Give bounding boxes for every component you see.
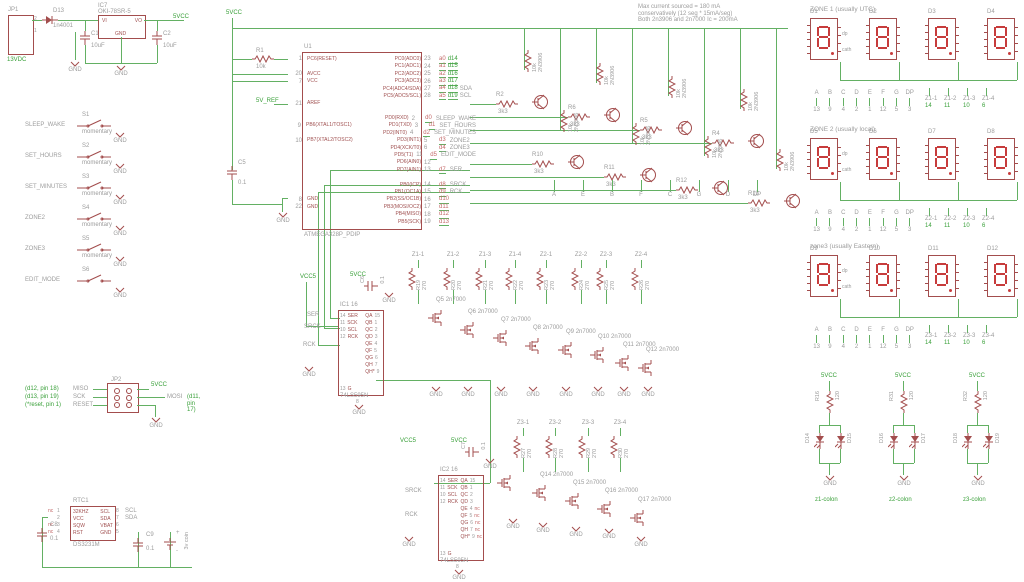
switch-row: SET_MINUTES S3 momentary GND: [25, 174, 155, 205]
pin-name: SCL: [348, 328, 358, 334]
capacitor-icon: [364, 281, 378, 291]
wire: [843, 98, 844, 106]
wire: [840, 299, 841, 317]
colon-led-section: 5VCC R16 120 D14 D15 GND z1-colon 5VCC: [813, 373, 1023, 513]
transistor-value: 2N3906: [718, 136, 724, 158]
pin-name: PB0(ICP): [365, 183, 424, 189]
segment-letter: C: [841, 210, 845, 217]
resistor-v-icon: [578, 436, 586, 458]
pin-name: QH*: [365, 370, 374, 376]
wire: [819, 425, 840, 426]
display-body: [869, 138, 897, 180]
net-label-5vcc: 5VCC: [821, 373, 837, 380]
signal-name: SDA: [460, 86, 472, 93]
net-label: Z3-1: [925, 333, 937, 340]
nmos-icon: [565, 493, 581, 509]
wire: [274, 104, 288, 105]
wire: [843, 335, 844, 343]
isp-header-body: [107, 383, 139, 413]
pin-name: SER: [348, 314, 358, 320]
net-label: Z1-2: [447, 252, 459, 259]
display-body: [928, 138, 956, 180]
colon-group: 5VCC R32 120 D18 D19 GND z3-colon: [963, 373, 1003, 509]
wire: [523, 458, 524, 472]
gnd-symbol: GND: [558, 386, 574, 399]
digit-resistor: Z2-1 R23270: [534, 252, 558, 304]
net-label-ser: SER: [307, 312, 319, 319]
pin-name: 32KHZ: [73, 510, 89, 516]
ic-right-pins: QA15QB1QC2QD3QE4QF5QG6QH7QH*9: [365, 313, 382, 393]
segment-pin-table: A 13 B 9 C 4 D 2 E 1 F: [810, 90, 916, 113]
wire: [157, 45, 158, 63]
wire: [75, 32, 76, 60]
led-name: D17: [921, 433, 927, 443]
ic-pin: 11SCK: [340, 320, 358, 327]
wire: [840, 62, 841, 80]
cap-name: C7: [461, 442, 467, 449]
net-label: SCL: [125, 508, 137, 515]
gnd-label: GND: [602, 534, 615, 541]
nmos-icon: [615, 355, 631, 371]
transistor-value: 2N3906: [754, 89, 760, 111]
pullup-resistor: 10k 2N3906: [776, 149, 796, 171]
mcu-pin-row: 20 AVCC PC2(ADC2) 25 a2 d16: [288, 71, 476, 78]
pin-name: AREF: [304, 101, 365, 107]
led-icon: [909, 433, 921, 449]
pin-name: QF: [460, 514, 467, 520]
pin-name: PD2(INT0): [357, 131, 410, 137]
pin-number: 9: [377, 370, 380, 376]
transistor-value: 2N3906: [574, 110, 580, 132]
gnd-symbol: GND: [640, 386, 656, 399]
segment-letter: E: [581, 192, 585, 199]
mcu-pin-row: PB1(OC1A) 15 d9 RCK: [288, 189, 476, 196]
pin-number: 16: [424, 197, 439, 204]
wire: [641, 290, 642, 304]
segment-pin: DP 3: [903, 210, 916, 233]
wire: [515, 290, 516, 304]
wire: [1017, 62, 1018, 80]
wire: [418, 290, 419, 304]
wire: [903, 463, 904, 475]
wire: [883, 335, 884, 343]
display-name: D9: [810, 246, 818, 253]
switch-net-label: ZONE3: [25, 246, 45, 253]
wire: [909, 335, 910, 343]
wire: [620, 458, 621, 472]
net-label-colon: z1-colon: [815, 497, 838, 504]
gnd-label: GND: [897, 481, 910, 488]
pin-number: 9: [288, 123, 303, 130]
pin-number: 1: [470, 486, 473, 492]
pin-number: 4: [842, 344, 845, 351]
segment-letter: G: [697, 192, 702, 199]
net-label: Z2-4: [635, 252, 647, 259]
ic-body: 14SER11SCK10SCL12RCK13G QA15QB1QC2QD3QE4…: [438, 475, 484, 561]
pin-number: 7: [288, 79, 304, 86]
gnd-label: GND: [634, 542, 647, 549]
resistor-value: 270: [422, 268, 428, 290]
decimal-point: [890, 289, 893, 292]
pin-number: 2: [57, 516, 65, 522]
gnd-symbol: GND: [633, 536, 649, 549]
connector-name: JP1: [8, 7, 18, 14]
isp-row: (d13, pin 19) SCK: [25, 393, 93, 401]
wire: [606, 260, 607, 268]
digit-net: Z2-1 14: [925, 208, 944, 229]
digit-net: Z3-2 11: [944, 325, 963, 346]
cap-name: C1: [91, 31, 99, 38]
pin-number: 14: [340, 314, 346, 320]
wire: [958, 62, 959, 80]
wire: [523, 428, 524, 436]
resistor-value: 3k3: [678, 195, 688, 202]
pin-note: (d11, pin 17): [187, 394, 205, 414]
decimal-point: [831, 52, 834, 55]
net-label: Z1-4: [509, 252, 521, 259]
net-annotation: d7 SER: [439, 167, 462, 175]
pin-number: 15: [374, 314, 380, 320]
pin-number: 2: [855, 107, 858, 114]
mcu-pin-row: [288, 174, 476, 181]
pin-name: SQW: [73, 524, 85, 530]
wire: [914, 425, 915, 433]
pin-number: 15: [470, 479, 476, 485]
wire: [977, 463, 978, 475]
signal-name: ZONE2: [450, 138, 470, 145]
switch-row: ZONE3 S5 momentary GND: [25, 236, 155, 267]
digit-resistor: Z3-1 R27270: [511, 420, 535, 472]
net-label: Z2-4: [982, 216, 994, 223]
nc-label: nc: [477, 535, 482, 541]
wire: [869, 335, 870, 343]
wire: [641, 180, 642, 192]
pin-name: SER: [448, 479, 458, 485]
resistor-v-icon: [776, 149, 784, 171]
switch-net-label: SLEEP_WAKE: [25, 122, 65, 129]
gnd-label: GND: [382, 298, 395, 305]
pnp-transistor-icon: [604, 107, 620, 123]
wire: [967, 88, 968, 96]
pin-number: 25: [424, 71, 439, 78]
gnd-label: GND: [494, 392, 507, 399]
net-label: Z1-3: [963, 96, 975, 103]
switch-type: momentary: [82, 191, 112, 198]
pin-name: GND: [304, 205, 365, 211]
pnp-driver: R10 3k3 10k 2N3906: [532, 134, 596, 180]
ic-pin: 13G: [340, 386, 358, 393]
pin-number: 8: [116, 509, 125, 515]
isp-header-section: (d12, pin 18) MISO (d13, pin 19) SCK (*r…: [25, 377, 205, 432]
mcu-pin-row: PB4(MISO) 18 d12: [288, 211, 476, 218]
ic-pin: QB1: [460, 485, 482, 492]
gnd-label: GND: [429, 392, 442, 399]
resistor-value: 270: [489, 268, 495, 290]
resistor-v-icon: [631, 268, 639, 290]
digit-resistor: Z3-2 R28270: [543, 420, 567, 472]
segment-letter: DP: [906, 327, 914, 334]
wire: [929, 325, 930, 333]
pin-number: 2: [412, 116, 426, 123]
wire: [840, 182, 841, 200]
signal-name: SET_HOURS: [439, 123, 476, 130]
wire: [883, 98, 884, 106]
wire: [929, 208, 930, 216]
pin-name: PB2(SS/OC1B): [365, 197, 424, 203]
pin-number: 4: [57, 530, 65, 536]
led-name: D19: [995, 433, 1001, 443]
pin-number: 11: [440, 486, 445, 492]
mcu-pin-row: PB5(SCK) 19 d13: [288, 219, 476, 226]
resistor-value: 270: [585, 268, 591, 290]
net-label-vcc5: VCC5: [300, 274, 316, 281]
mosfet-name: Q15: [573, 480, 584, 486]
mosfet-label: Q6 2n7000: [468, 309, 508, 316]
wire: [85, 45, 86, 63]
resistor-value: 270: [624, 436, 630, 458]
wire: [967, 425, 968, 433]
digit-net: Z2-4 6: [982, 208, 1001, 229]
segment-driver-section: R2 3k3 10k 2N3906 R6 3k3 10k 2N3906: [488, 22, 788, 242]
segment-pin: C 4: [837, 327, 850, 350]
pin-name: QH: [365, 363, 373, 369]
wire: [977, 381, 978, 391]
gnd-symbol: GND: [302, 366, 316, 379]
schematic-canvas: JP1 2 1 13VDC GND D13 1n4001 IC7 OKI-78S…: [0, 0, 1024, 579]
decimal-point: [1008, 52, 1011, 55]
digit-resistor: Z1-1 R19270: [406, 252, 430, 304]
segment-net: E: [577, 180, 589, 199]
wire: [967, 325, 968, 333]
segment-net: F: [635, 180, 647, 199]
wire: [869, 98, 870, 106]
mcu-pin-row: 22 GND PB3(MOSI/OC2) 17 d11: [288, 204, 476, 211]
resistor-v-icon: [704, 136, 712, 158]
ic-pin: QD3: [460, 499, 482, 506]
resistor-value: 270: [559, 436, 565, 458]
wire: [137, 405, 155, 406]
wire: [32, 20, 42, 21]
pin-number: 5: [424, 138, 439, 145]
cap-value: 10uF: [91, 43, 105, 50]
design-notes: Max current sourced = 180 mA conservativ…: [638, 4, 738, 24]
mcu-value: ATMEGA328P_PDIP: [304, 232, 360, 239]
cath-label: cath: [842, 48, 851, 54]
pin-number: 1: [868, 227, 871, 234]
wire: [554, 180, 555, 192]
gnd-symbol: GND: [568, 526, 584, 539]
regulator-pin-vo: VO: [135, 19, 142, 25]
wire: [829, 98, 830, 106]
wire: [948, 88, 949, 96]
ic-pin: QA15: [460, 478, 482, 485]
wire: [232, 59, 252, 60]
display-name: D4: [987, 9, 995, 16]
pin-number: 26: [424, 79, 439, 86]
switch-row: SET_HOURS S2 momentary GND: [25, 143, 155, 174]
net-label-5vcc: 5VCC: [173, 14, 189, 21]
wire: [816, 218, 817, 226]
segment-letter: B: [828, 90, 832, 97]
gnd-label: GND: [971, 481, 984, 488]
segment-pin: DP 3: [903, 90, 916, 113]
pin-number: 11: [944, 223, 950, 230]
wire: [896, 335, 897, 343]
net-label-vcc5: VCC5: [400, 438, 416, 445]
resistor-v-icon: [545, 436, 553, 458]
pin-name: QC: [365, 328, 373, 334]
pnp-transistor-icon: [568, 154, 584, 170]
digit-resistor: Z2-4 R26270: [629, 252, 653, 304]
wire: [986, 325, 987, 333]
net-label-srck: SRCK: [405, 488, 422, 495]
wire: [42, 517, 48, 518]
mcu-section: 5VCC R1 10k 5V_REF C5 0.1 GND U1 1 PC6(R…: [226, 8, 476, 243]
mosfet-name: Q14: [540, 472, 551, 478]
net-label: d5: [430, 152, 437, 160]
wire: [840, 449, 841, 463]
pin-name: PB7(XTAL2/TOSC2): [304, 138, 365, 144]
pin-name: QH*: [460, 535, 469, 541]
wire: [967, 449, 968, 463]
net-annotation: d5 EDIT_MODE: [430, 152, 476, 160]
wire: [816, 98, 817, 106]
wire: [840, 80, 1017, 81]
resistor-icon: [532, 160, 554, 168]
pin-number: 3: [415, 123, 429, 130]
segment-net: DP: [751, 180, 763, 199]
mosfet-label: Q16 2n7000: [605, 488, 645, 495]
segment-pin: A 13: [810, 327, 823, 350]
dp-label: dp: [842, 269, 848, 275]
wire: [42, 567, 192, 568]
gnd-label: GND: [641, 392, 654, 399]
pin-number: 20: [288, 71, 304, 78]
wire: [829, 413, 830, 425]
mosfet-label: Q5 2n7000: [436, 297, 476, 304]
colon-group: 5VCC R31 120 D16 D17 GND z2-colon: [889, 373, 929, 509]
display-body: [810, 255, 838, 297]
segment-pin: G 5: [890, 210, 903, 233]
gnd-symbol: GND: [616, 386, 632, 399]
led-name: D14: [805, 433, 811, 443]
pin-number: 5: [116, 530, 125, 536]
mcu-pin-row: 10 PB7(XTAL2/TOSC2) PD3(INT1) 5 d3 ZONE2: [288, 137, 476, 144]
segment-pin: F 12: [876, 327, 889, 350]
pin-number: 1: [374, 321, 377, 327]
gnd-label: GND: [352, 410, 365, 417]
mosfet-name: Q9: [566, 329, 574, 335]
pin-name: PB1(OC1A): [365, 190, 424, 196]
cap-value: 0.1: [380, 276, 386, 284]
digit-net: Z2-2 11: [944, 208, 963, 229]
pin-number: 4: [374, 342, 377, 348]
wire: [757, 180, 758, 192]
pin-name: QE: [365, 342, 372, 348]
wire: [977, 413, 978, 425]
gnd-symbol: GND: [114, 65, 128, 78]
ic-pin: QG6: [365, 355, 382, 362]
pin-note: (d12, pin 18): [25, 386, 73, 393]
pin-name: QA: [460, 479, 467, 485]
wire: [418, 260, 419, 268]
digit-net: Z1-3 10: [963, 88, 982, 109]
pin-name: QH: [460, 528, 468, 534]
wire: [121, 37, 122, 63]
pin-name: PB4(MISO): [365, 212, 424, 218]
isp-left-notes: (d12, pin 18) MISO (d13, pin 19) SCK (*r…: [25, 385, 93, 409]
net-label-5vcc: 5VCC: [226, 10, 242, 17]
mosfet-value: 2n7000: [511, 317, 531, 323]
pin-number: 2: [470, 493, 473, 499]
mosfet-value: 2n7000: [543, 325, 563, 331]
segment-pin: G 5: [890, 90, 903, 113]
resistor-value: 270: [519, 268, 525, 290]
net-label: Z3-1: [517, 420, 529, 427]
ic-name: IC2 16: [440, 467, 458, 474]
gnd-symbol: GND: [601, 528, 617, 541]
pin-number: 4: [842, 107, 845, 114]
segment-net: G: [693, 180, 705, 199]
pin-name: PB3(MOSI/OC2): [365, 205, 424, 211]
pin-name: SCK: [447, 486, 457, 492]
pnp-driver: R2 3k3 10k 2N3906: [496, 74, 560, 120]
gnd-symbol: GND: [483, 458, 497, 471]
led-icon: [814, 433, 826, 449]
pin-number: 10: [963, 103, 970, 110]
digit-resistor: Z2-3 R25270: [594, 252, 618, 304]
transistor-value: 2N3906: [610, 63, 616, 85]
pullup-resistor: 10k 2N3906: [596, 63, 616, 85]
pin-name: PC5(ADC5/SCL): [365, 94, 424, 100]
net-label-colon: z3-colon: [963, 497, 986, 504]
pin-number: 13: [813, 344, 820, 351]
segment-letter: G: [894, 210, 899, 217]
wire: [819, 425, 820, 433]
pin-number: 6: [470, 521, 473, 527]
digit-8: [876, 26, 889, 49]
gnd-symbol: GND: [149, 417, 163, 430]
resistor-value: 3k3: [498, 109, 508, 116]
pin-name: PD1(TXD): [360, 123, 415, 129]
mosfet-label: Q12 2n7000: [646, 347, 686, 354]
pin-name: QB: [365, 321, 372, 327]
mosfet-label: Q17 2n7000: [638, 497, 678, 504]
pin-number: 14: [925, 103, 932, 110]
pin-name: PC6(RESET): [304, 57, 365, 63]
diode-name: D13: [53, 8, 64, 15]
rtc-pin: 2: [48, 515, 65, 522]
segment-pin: C 4: [837, 90, 850, 113]
pin-number: 11: [944, 340, 950, 347]
pin-name: QF: [365, 349, 372, 355]
segment-letter: C: [841, 327, 845, 334]
capacitor-icon: [226, 166, 238, 180]
digit-net: Z3-4 6: [982, 325, 1001, 346]
net-annotation: a5 d19 SCL: [439, 93, 471, 101]
pin-number: 5: [895, 107, 898, 114]
nmos-icon: [525, 338, 541, 354]
pin-name: PD3(INT1): [365, 138, 424, 144]
mcu-pin-row: PD0(RXD) 2 d0 SLEEP_WAKE: [288, 115, 476, 122]
nmos-icon: [638, 360, 654, 376]
resistor-value: 120: [909, 391, 915, 400]
capacitor-icon: [465, 447, 479, 457]
pnp-transistor-icon: [676, 120, 692, 136]
gnd-label: GND: [302, 372, 315, 379]
wire: [453, 260, 454, 268]
digit-resistor: Z3-4 R30270: [608, 420, 632, 472]
